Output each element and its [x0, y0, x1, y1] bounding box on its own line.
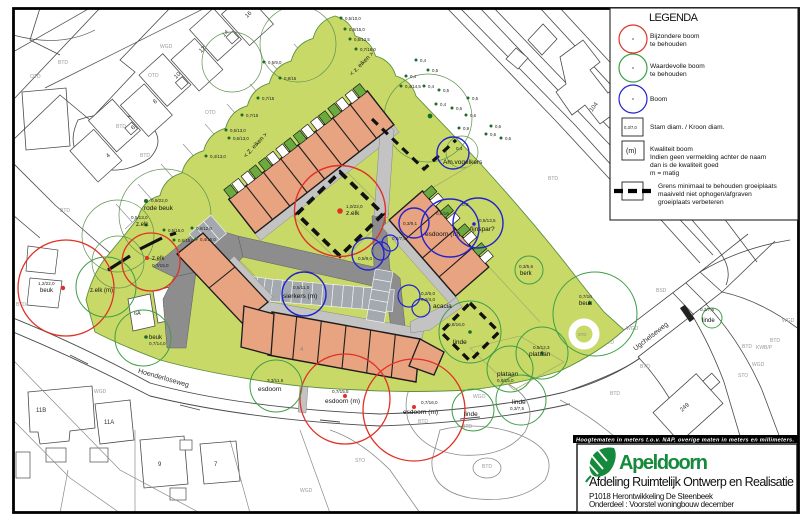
- svg-text:linde: linde: [464, 411, 478, 418]
- svg-text:STO: STO: [738, 373, 748, 379]
- svg-text:(m): (m): [626, 148, 637, 155]
- svg-text:11A: 11A: [104, 420, 114, 426]
- svg-text:STD: STD: [578, 332, 586, 337]
- svg-text:Onderdeel : Voorstel woningbou: Onderdeel : Voorstel woningbouw december: [589, 500, 734, 509]
- svg-text:0,6: 0,6: [470, 113, 477, 118]
- svg-text:linde: linde: [453, 339, 467, 346]
- svg-text:0,9/22,0: 0,9/22,0: [151, 198, 168, 203]
- svg-text:STO: STO: [355, 458, 365, 464]
- svg-text:0,4/14,5: 0,4/14,5: [405, 84, 421, 89]
- svg-text:0,8/16,0: 0,8/16,0: [448, 322, 465, 327]
- svg-text:fijnspar?: fijnspar?: [470, 226, 495, 233]
- svg-text:WGO: WGO: [473, 394, 486, 400]
- svg-text:0,3/7,0: 0,3/7,0: [624, 125, 637, 130]
- svg-text:0,9/15: 0,9/15: [284, 76, 297, 81]
- svg-text:0,4: 0,4: [420, 58, 427, 63]
- svg-text:BTD: BTD: [742, 344, 752, 350]
- svg-text:BTD: BTD: [640, 364, 650, 370]
- svg-text:WGD: WGD: [752, 362, 765, 368]
- svg-text:esdoorn (m): esdoorn (m): [325, 398, 360, 405]
- svg-text:z.elk: z.elk: [346, 210, 360, 217]
- svg-text:0,6/15,0: 0,6/15,0: [349, 27, 365, 32]
- svg-text:rode beuk: rode beuk: [144, 205, 174, 212]
- svg-text:Waardevolle boom: Waardevolle boom: [650, 63, 705, 70]
- svg-text:Bijzondere boom: Bijzondere boom: [650, 33, 700, 40]
- svg-text:0,4: 0,4: [410, 74, 417, 79]
- svg-text:BTD: BTD: [770, 338, 780, 344]
- svg-text:BTD: BTD: [610, 391, 620, 397]
- svg-text:Am.vogelkers: Am.vogelkers: [443, 159, 483, 166]
- svg-text:acacia: acacia: [433, 303, 452, 310]
- svg-text:dan is de kwaliteit goed: dan is de kwaliteit goed: [650, 162, 719, 169]
- svg-text:te behouden: te behouden: [650, 41, 687, 48]
- svg-text:WGD: WGD: [782, 318, 795, 324]
- svg-text:plataan: plataan: [497, 371, 519, 378]
- svg-text:0,6: 0,6: [456, 106, 463, 111]
- svg-text:0,7/16,0: 0,7/16,0: [421, 400, 438, 405]
- svg-text:WGD: WGD: [160, 44, 173, 50]
- svg-text:6A: 6A: [134, 311, 141, 317]
- svg-text:berk: berk: [520, 271, 533, 277]
- svg-text:0,7/14,0: 0,7/14,0: [149, 341, 166, 346]
- svg-text:BTD: BTD: [548, 176, 558, 182]
- svg-text:0,5/15,0: 0,5/15,0: [168, 228, 184, 233]
- svg-text:0,2/4,0: 0,2/4,0: [421, 297, 435, 302]
- svg-text:0,5/9,0: 0,5/9,0: [358, 256, 372, 261]
- svg-text:BSD: BSD: [656, 288, 667, 294]
- svg-text:0,6/16: 0,6/16: [436, 211, 449, 216]
- svg-text:Apeldoorn: Apeldoorn: [619, 452, 708, 474]
- svg-text:Stam diam. / Kroon diam.: Stam diam. / Kroon diam.: [650, 124, 725, 131]
- svg-text:0,7/15: 0,7/15: [246, 113, 259, 118]
- svg-text:0,6: 0,6: [505, 136, 512, 141]
- svg-text:esdoorn (m): esdoorn (m): [403, 409, 438, 416]
- svg-text:linde: linde: [702, 318, 715, 324]
- svg-text:0,5/9,0: 0,5/9,0: [268, 60, 282, 65]
- svg-text:0,3/9,1: 0,3/9,1: [403, 221, 417, 226]
- svg-text:0,4/13,0: 0,4/13,0: [210, 154, 226, 159]
- svg-text:OTD: OTD: [148, 73, 159, 79]
- svg-text:0,5: 0,5: [472, 96, 479, 101]
- svg-text:Indien geen vermelding achter: Indien geen vermelding achter de naam: [650, 154, 767, 161]
- svg-text:0,7/15: 0,7/15: [262, 96, 275, 101]
- svg-text:Afdeling Ruimtelijk Ontwerp en: Afdeling Ruimtelijk Ontwerp en Realisati…: [589, 475, 794, 489]
- svg-text:0,5/13,5: 0,5/13,5: [479, 218, 496, 223]
- svg-text:0,5/13,0: 0,5/13,0: [230, 128, 246, 133]
- svg-text:0,6: 0,6: [495, 124, 502, 129]
- svg-text:Grens minimaal te behouden gro: Grens minimaal te behouden groeiplaats: [658, 183, 777, 190]
- svg-text:1,2/22,0: 1,2/22,0: [38, 281, 55, 286]
- svg-text:BTD: BTD: [58, 60, 68, 66]
- svg-text:0,4/15,0: 0,4/15,0: [200, 237, 216, 242]
- svg-text:BTD: BTD: [418, 419, 428, 425]
- svg-text:0,5/13,0: 0,5/13,0: [131, 215, 148, 220]
- svg-text:groeiplaats verbeteren: groeiplaats verbeteren: [658, 199, 724, 206]
- svg-text:0,7/16: 0,7/16: [579, 294, 592, 299]
- svg-text:z.elk: z.elk: [152, 256, 165, 262]
- svg-text:Boom: Boom: [650, 96, 668, 103]
- svg-text:1,0/22,0: 1,0/22,0: [346, 204, 363, 209]
- svg-text:WGD: WGD: [300, 488, 313, 494]
- svg-text:0,5: 0,5: [432, 68, 439, 73]
- svg-text:0,3/7,5: 0,3/7,5: [510, 406, 524, 411]
- svg-text:Hoogtematen in meters t.o.v. N: Hoogtematen in meters t.o.v. NAP, overig…: [576, 438, 794, 444]
- svg-text:0,5: 0,5: [443, 88, 450, 93]
- svg-text:0,2/6,0: 0,2/6,0: [421, 291, 435, 296]
- svg-text:linde: linde: [512, 399, 526, 406]
- svg-text:BTD: BTD: [140, 153, 150, 159]
- svg-text:Kwaliteit boom: Kwaliteit boom: [650, 146, 693, 153]
- svg-text:beuk: beuk: [40, 288, 54, 294]
- svg-text:0,5/11,0: 0,5/11,0: [293, 285, 310, 290]
- svg-text:BTD: BTD: [482, 464, 492, 470]
- svg-text:0,7/15,0: 0,7/15,0: [152, 263, 169, 268]
- svg-text:beuk: beuk: [579, 301, 593, 307]
- svg-text:0,4: 0,4: [440, 102, 447, 107]
- svg-text:0,4: 0,4: [456, 146, 463, 151]
- svg-text:0,4: 0,4: [428, 84, 435, 89]
- svg-text:KWB/P: KWB/P: [756, 345, 773, 351]
- svg-text:0,6/12,0: 0,6/12,0: [196, 226, 212, 231]
- svg-text:OTD: OTD: [30, 74, 41, 80]
- svg-text:0,7/15,5: 0,7/15,5: [332, 389, 349, 394]
- svg-text:0,2/7,0: 0,2/7,0: [392, 236, 406, 241]
- svg-text:0,6/15,0: 0,6/15,0: [178, 238, 194, 243]
- svg-text:m = matig: m = matig: [650, 170, 679, 177]
- svg-text:3,3/11,6: 3,3/11,6: [267, 378, 284, 383]
- svg-text:0,7/18,0: 0,7/18,0: [360, 47, 376, 52]
- svg-text:BTD: BTD: [60, 208, 70, 214]
- svg-text:esdoorn: esdoorn: [258, 386, 282, 393]
- svg-text:0,6: 0,6: [490, 132, 497, 137]
- svg-text:plataan: plataan: [529, 351, 551, 358]
- svg-text:LEGENDA: LEGENDA: [649, 12, 699, 24]
- svg-text:0,6/13,0: 0,6/13,0: [233, 136, 249, 141]
- svg-text:WGD: WGD: [94, 389, 107, 395]
- svg-text:11B: 11B: [36, 408, 46, 414]
- svg-text:OTD: OTD: [205, 110, 216, 116]
- svg-text:0,3/5,6: 0,3/5,6: [519, 264, 533, 269]
- svg-text:maaiveld niet ophogen/afgraven: maaiveld niet ophogen/afgraven: [658, 191, 752, 198]
- svg-text:BTD: BTD: [116, 124, 126, 130]
- svg-text:0,9: 0,9: [463, 126, 470, 131]
- svg-text:0,2/7,6: 0,2/7,6: [700, 307, 714, 312]
- svg-text:sierkers (m): sierkers (m): [283, 293, 317, 300]
- svg-text:0,5/13,5: 0,5/13,5: [354, 37, 370, 42]
- svg-text:te behouden: te behouden: [650, 71, 687, 78]
- svg-text:0,5/10,0: 0,5/10,0: [345, 16, 361, 21]
- svg-text:z.elk (m): z.elk (m): [90, 288, 113, 294]
- svg-text:0,5/12,3: 0,5/12,3: [533, 345, 550, 350]
- svg-text:z.elk: z.elk: [136, 222, 149, 228]
- svg-text:WGD: WGD: [626, 326, 639, 332]
- svg-text:0,3: 0,3: [462, 202, 469, 207]
